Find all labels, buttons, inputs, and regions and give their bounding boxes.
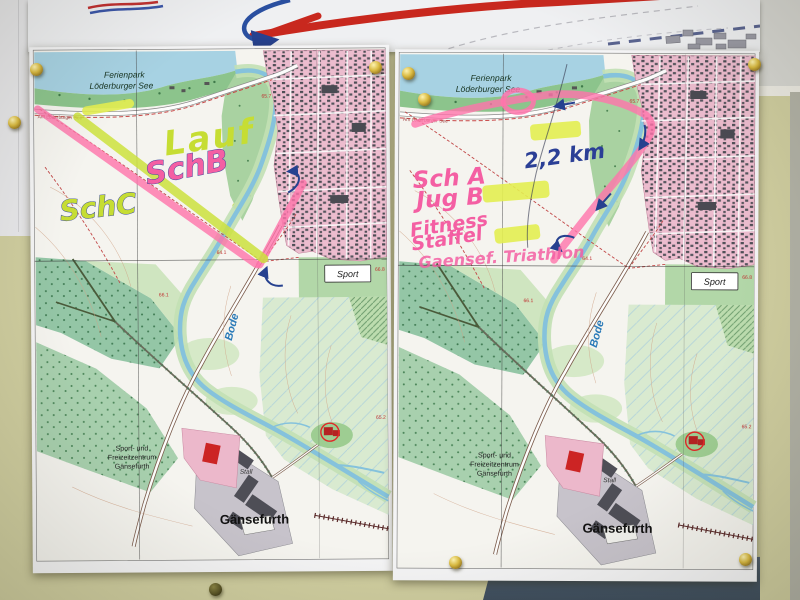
- pushpin: [402, 67, 415, 80]
- annotation-class-list: Sch A Jug B Fitness Staffel Gaensef. Tri…: [408, 162, 585, 273]
- pushpin: [748, 58, 761, 71]
- pushpin: [739, 553, 752, 566]
- wall-frame-line: [18, 0, 19, 232]
- pushpin: [8, 116, 21, 129]
- faint-sketch-line: [438, 6, 698, 52]
- map-sheet-right: Ferienpark Löderburger See Am Löderburge…: [393, 49, 759, 582]
- left-map-annotations: Lauf SchB SchC: [29, 45, 393, 574]
- map-sheet-left: Ferienpark Löderburger See Am Löderburge…: [29, 45, 393, 574]
- pushpin: [30, 63, 43, 76]
- pushpin: [418, 93, 431, 106]
- right-map-annotations: 2,2 km Sch A Jug B Fitness Staffel Gaens…: [393, 49, 759, 582]
- wall-corner: [756, 0, 800, 92]
- upper-map-sheet: [28, 0, 760, 52]
- annotation-schb: SchB: [142, 143, 231, 193]
- yellow-highlight-bars: [482, 120, 582, 244]
- yellow-highlight-segment: [87, 104, 130, 111]
- annotation-schc: SchC: [58, 187, 139, 228]
- building-sketches: [666, 30, 756, 49]
- route-highlight-pink: [259, 183, 304, 264]
- direction-arrow: [265, 267, 283, 285]
- photo-of-pinned-maps: Ferienpark Löderburger See Am Löderburge…: [0, 0, 800, 600]
- small-blue-line: [90, 6, 163, 13]
- pushpin: [449, 556, 462, 569]
- annotation-distance: 2,2 km: [523, 139, 607, 175]
- wall-edge-strip: [790, 92, 800, 600]
- pushpin: [209, 583, 222, 596]
- pushpin: [369, 61, 382, 74]
